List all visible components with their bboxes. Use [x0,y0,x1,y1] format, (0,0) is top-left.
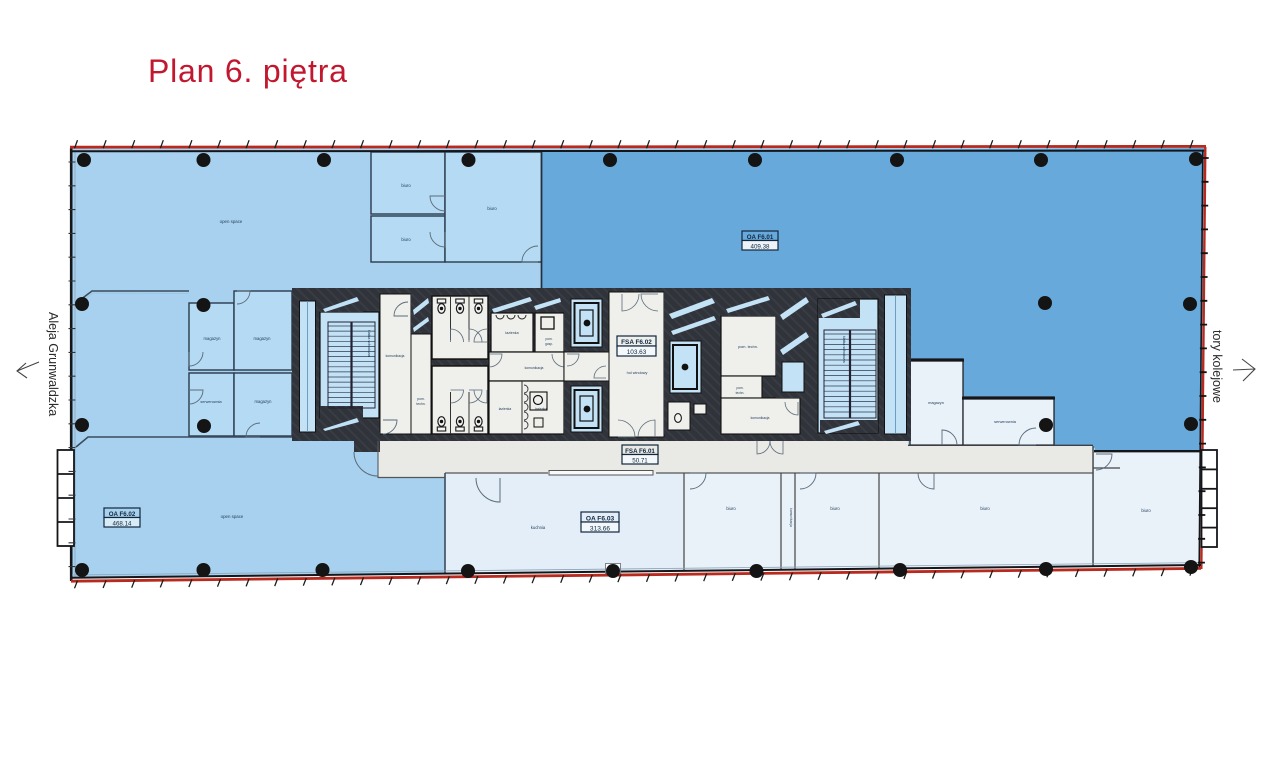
svg-text:kuchnia: kuchnia [531,525,546,530]
svg-text:gosp.: gosp. [545,342,553,346]
svg-text:biuro: biuro [1141,508,1151,513]
svg-text:468.14: 468.14 [113,521,132,528]
svg-text:biuro: biuro [980,506,990,511]
svg-text:łazienka: łazienka [505,331,518,335]
svg-text:magazyn: magazyn [928,400,944,405]
svg-text:magazyn: magazyn [204,336,222,341]
svg-text:komunikacja: komunikacja [525,366,544,370]
svg-text:biuro: biuro [401,183,411,188]
svg-text:techn.: techn. [736,391,745,395]
svg-text:biuro: biuro [830,506,840,511]
svg-text:komunikacja: komunikacja [751,416,770,420]
svg-text:pom.: pom. [736,386,743,390]
svg-text:hol windowy: hol windowy [627,371,648,375]
svg-text:łazienka: łazienka [499,407,512,411]
svg-text:FSA F6.02: FSA F6.02 [621,339,652,346]
svg-text:103.63: 103.63 [627,349,647,356]
svg-text:313.66: 313.66 [590,526,611,533]
svg-text:techn.: techn. [416,402,425,406]
svg-text:biuro: biuro [487,206,497,211]
svg-text:biuro: biuro [401,237,411,242]
svg-text:409.38: 409.38 [751,244,770,251]
svg-text:open space: open space [221,514,244,519]
svg-text:komunikacja: komunikacja [789,508,793,527]
svg-text:serwerownia: serwerownia [994,419,1017,424]
svg-text:Aleja Grunwaldzka: Aleja Grunwaldzka [46,312,60,416]
svg-text:komunikacja: komunikacja [386,354,405,358]
svg-text:pom. techn.: pom. techn. [738,345,758,349]
svg-text:klatka schodowa: klatka schodowa [367,330,371,357]
svg-text:serwerownia: serwerownia [200,400,222,404]
svg-text:pom.: pom. [417,397,425,401]
svg-text:pom.: pom. [545,337,552,341]
svg-text:magazyn: magazyn [254,336,272,341]
svg-text:klatka schodowa: klatka schodowa [842,336,846,363]
svg-text:biuro: biuro [726,506,736,511]
svg-text:open space: open space [220,219,243,224]
svg-text:Plan 6. piętra: Plan 6. piętra [148,53,348,89]
svg-text:50.71: 50.71 [632,458,648,465]
svg-text:magazyn: magazyn [255,399,273,404]
svg-text:tory kolejowe: tory kolejowe [1210,330,1224,403]
